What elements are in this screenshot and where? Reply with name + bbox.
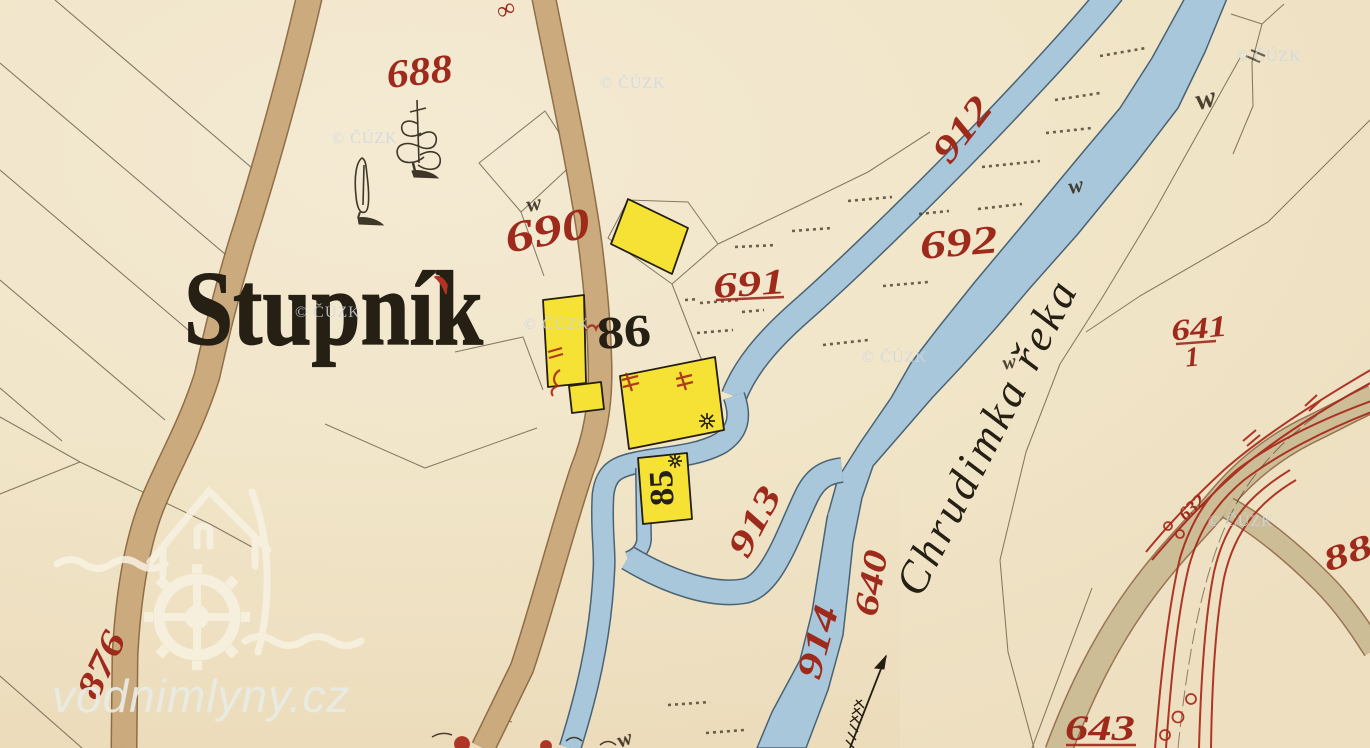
- svg-text:688: 688: [384, 45, 454, 97]
- svg-text:85: 85: [643, 469, 682, 507]
- svg-text:86: 86: [595, 304, 652, 359]
- svg-text:© ČÚZK: © ČÚZK: [1208, 511, 1274, 530]
- svg-text:1: 1: [1184, 341, 1201, 373]
- svg-text:643: 643: [1065, 708, 1135, 748]
- svg-text:vodnimlyny.cz: vodnimlyny.cz: [52, 670, 350, 722]
- svg-text:© ČÚZK: © ČÚZK: [600, 73, 666, 92]
- svg-text:© ČÚZK: © ČÚZK: [1236, 46, 1302, 65]
- svg-text:© ČÚZK: © ČÚZK: [862, 347, 928, 366]
- svg-text:© ČÚZK: © ČÚZK: [332, 128, 398, 147]
- svg-text:692: 692: [918, 216, 1000, 268]
- svg-text:© ČÚZK: © ČÚZK: [524, 314, 590, 333]
- svg-text:© ČÚZK: © ČÚZK: [295, 302, 361, 321]
